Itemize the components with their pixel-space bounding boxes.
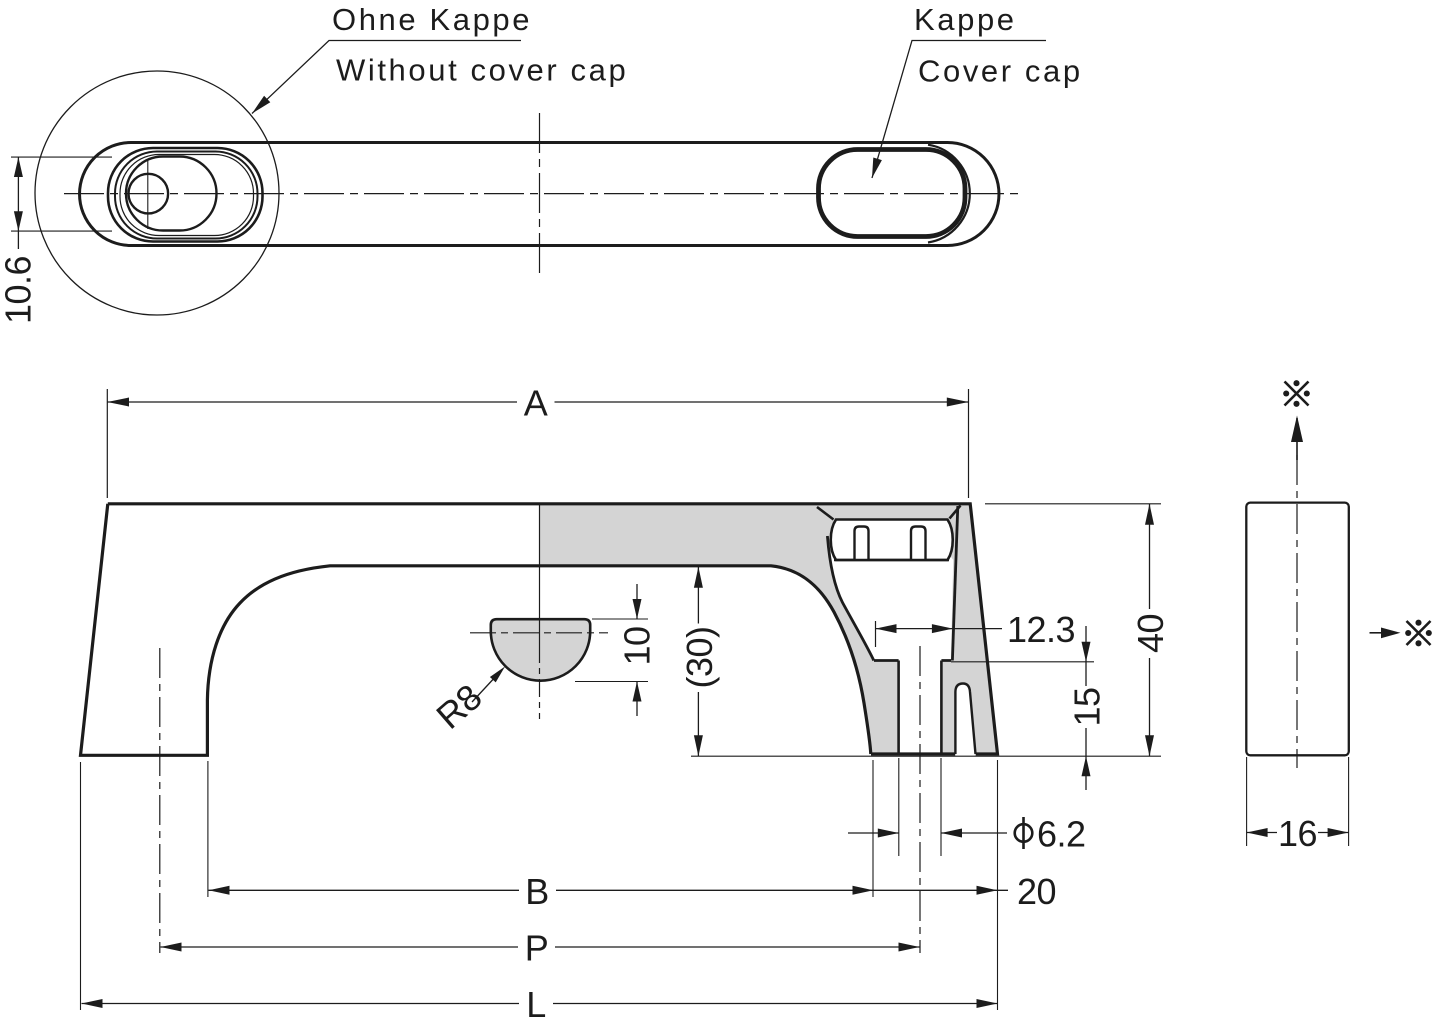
svg-text:Cover cap: Cover cap (918, 54, 1083, 89)
svg-text:15: 15 (1067, 687, 1108, 726)
svg-text:20: 20 (1017, 871, 1056, 912)
svg-text:(30): (30) (679, 626, 720, 688)
svg-text:Ohne Kappe: Ohne Kappe (332, 2, 532, 37)
svg-text:10.6: 10.6 (0, 256, 39, 324)
svg-text:16: 16 (1278, 813, 1317, 854)
svg-text:R8: R8 (428, 676, 489, 736)
svg-text:6.2: 6.2 (1037, 814, 1086, 855)
svg-text:P: P (525, 928, 549, 969)
svg-text:40: 40 (1130, 614, 1171, 653)
svg-text:10: 10 (617, 626, 658, 665)
svg-text:Kappe: Kappe (914, 2, 1017, 37)
svg-text:L: L (526, 984, 546, 1025)
svg-text:A: A (524, 383, 548, 424)
svg-text:12.3: 12.3 (1007, 609, 1075, 650)
svg-text:Without cover cap: Without cover cap (336, 53, 628, 88)
svg-text:B: B (525, 871, 549, 912)
